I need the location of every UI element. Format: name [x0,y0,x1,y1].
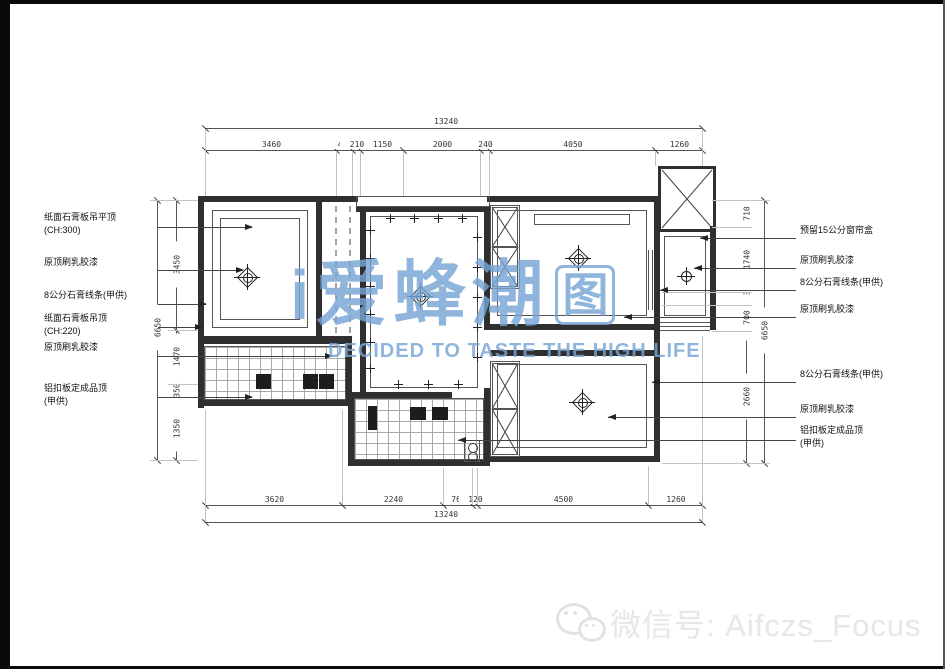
arrow-left-icon [652,379,660,385]
extension-line [489,152,490,196]
double-socket-icon [464,440,480,462]
dim-label: 2000 [426,140,460,149]
annotation-right: 8公分石膏线条(甲供) [800,368,883,381]
annotation-right: 8公分石膏线条(甲供) [800,276,883,289]
wall [198,400,352,406]
spotlight-icon [473,353,482,362]
light-fixture [410,407,426,420]
arrow-right-icon [199,301,207,307]
spotlight-icon [434,214,443,223]
dim-label: 4050 [556,140,590,149]
ceiling-lamp-icon [565,245,591,271]
arrow-right-icon [325,353,333,359]
leader-line [158,227,252,228]
extension-line [150,460,198,461]
annotation-right: 原顶刷乳胶漆 [800,303,854,316]
wall [490,350,660,356]
extension-line [712,227,752,228]
annotation-right: 预留15公分窗帘盒 [800,224,873,237]
extension-line [480,152,481,196]
dim-label: 6650 [761,308,770,354]
wall [198,196,358,202]
dim-label: 13240 [433,117,459,126]
extension-line [648,466,649,505]
window-hatch [660,322,710,331]
dim-label: 1260 [663,140,697,149]
dim-label: 240 [469,140,503,149]
spotlight-icon [386,214,395,223]
dim-label: 710 [743,190,752,236]
wall [316,196,322,342]
extension-line [443,468,444,505]
drawing-page: { "drawing": { "type": "ceiling-plan", "… [0,0,945,669]
molding-line [220,218,300,320]
light-fixture [368,406,377,430]
wall [487,196,660,202]
entry-window [356,196,490,207]
extension-line [477,468,478,505]
dim-line-total [205,128,702,129]
spotlight-icon [424,380,433,389]
extension-line [403,152,404,196]
annotation-left: 原顶刷乳胶漆 [44,256,98,269]
curtain-box [534,214,630,225]
dim-label: 2660 [743,374,752,420]
leader-line [694,268,796,269]
dim-line [205,150,702,151]
leader-line [158,356,332,357]
extension-line [655,152,656,166]
wall [198,336,348,344]
dim-label: 13240 [433,510,459,519]
annotation-left: 纸面石膏板吊顶(CH:220) [44,312,107,338]
arrow-right-icon [236,267,244,273]
extension-line [342,410,343,505]
annotation-right: 铝扣板定成品顶(甲供) [800,424,863,450]
dim-label: 3620 [258,495,292,504]
spotlight-icon [366,226,375,235]
dim-line [205,505,702,506]
spotlight-icon [473,233,482,242]
spotlight-icon [454,380,463,389]
extension-line [662,305,752,306]
leader-line [652,382,796,383]
extension-line [472,468,473,505]
leader-line [458,440,796,441]
light-fixture [303,374,318,389]
leader-line [660,290,796,291]
extension-line [712,200,770,201]
spotlight-icon [366,338,375,347]
dim-line-total [205,522,702,523]
spotlight-icon [366,282,375,291]
wardrobe-cell [492,207,518,247]
arrow-right-icon [245,224,253,230]
wardrobe-cell [492,363,518,409]
ceiling-lamp-icon [569,389,595,415]
extension-line [662,292,752,293]
wall [490,324,660,330]
extension-line [205,130,206,196]
dim-label: 1150 [366,140,400,149]
light-fixture [256,374,271,389]
extension-line [662,463,770,464]
annotation-left: 纸面石膏板吊平顶(CH:300) [44,211,116,237]
light-fixture [319,374,334,389]
leader-line [624,317,796,318]
extension-line [168,330,198,331]
window-hatch [648,250,656,310]
annotation-left: 原顶刷乳胶漆 [44,341,98,354]
arrow-left-icon [700,235,708,241]
extension-line [360,152,361,196]
extension-line [168,384,198,385]
wardrobe-cell [492,247,518,287]
dim-label: 120 [459,495,493,504]
extension-line [712,331,752,332]
leader-line [700,238,796,239]
ceiling-lamp-icon [677,267,695,285]
dim-label: 4500 [547,495,581,504]
spotlight-icon [473,263,482,272]
dim-label: 3450 [173,242,182,288]
wardrobe-cell [492,409,518,455]
arrow-left-icon [694,265,702,271]
arrow-left-icon [660,287,668,293]
dim-label: 2240 [377,495,411,504]
arrow-right-icon [245,394,253,400]
extension-line [702,336,703,522]
spotlight-icon [366,254,375,263]
arrow-right-icon [195,324,203,330]
floor-plan: 1324034604202101150200024040501260362022… [0,0,945,669]
spotlight-icon [410,214,419,223]
extension-line [336,152,337,196]
extension-line [205,410,206,522]
extension-line [352,152,353,196]
annotation-right: 原顶刷乳胶漆 [800,403,854,416]
extension-line [150,200,198,201]
arrow-left-icon [624,314,632,320]
spotlight-icon [366,364,375,373]
leader-line [158,397,252,398]
annotation-right: 原顶刷乳胶漆 [800,254,854,267]
dim-label: 1350 [173,405,182,451]
spotlight-icon [458,214,467,223]
arrow-left-icon [458,437,466,443]
spotlight-icon [473,323,482,332]
ceiling-lamp-icon [407,283,433,309]
dim-label: 1260 [659,495,693,504]
leader-line [158,270,243,271]
wall [710,226,716,330]
extension-line [702,130,703,166]
spotlight-icon [473,293,482,302]
spotlight-icon [366,310,375,319]
annotation-left: 铝扣板定成品顶(甲供) [44,382,107,408]
spotlight-icon [394,380,403,389]
dim-label: 3460 [255,140,289,149]
leader-line [608,417,796,418]
annotation-left: 8公分石膏线条(甲供) [44,289,127,302]
arrow-left-icon [608,414,616,420]
light-fixture [432,407,448,420]
elevator-shaft [658,166,716,232]
